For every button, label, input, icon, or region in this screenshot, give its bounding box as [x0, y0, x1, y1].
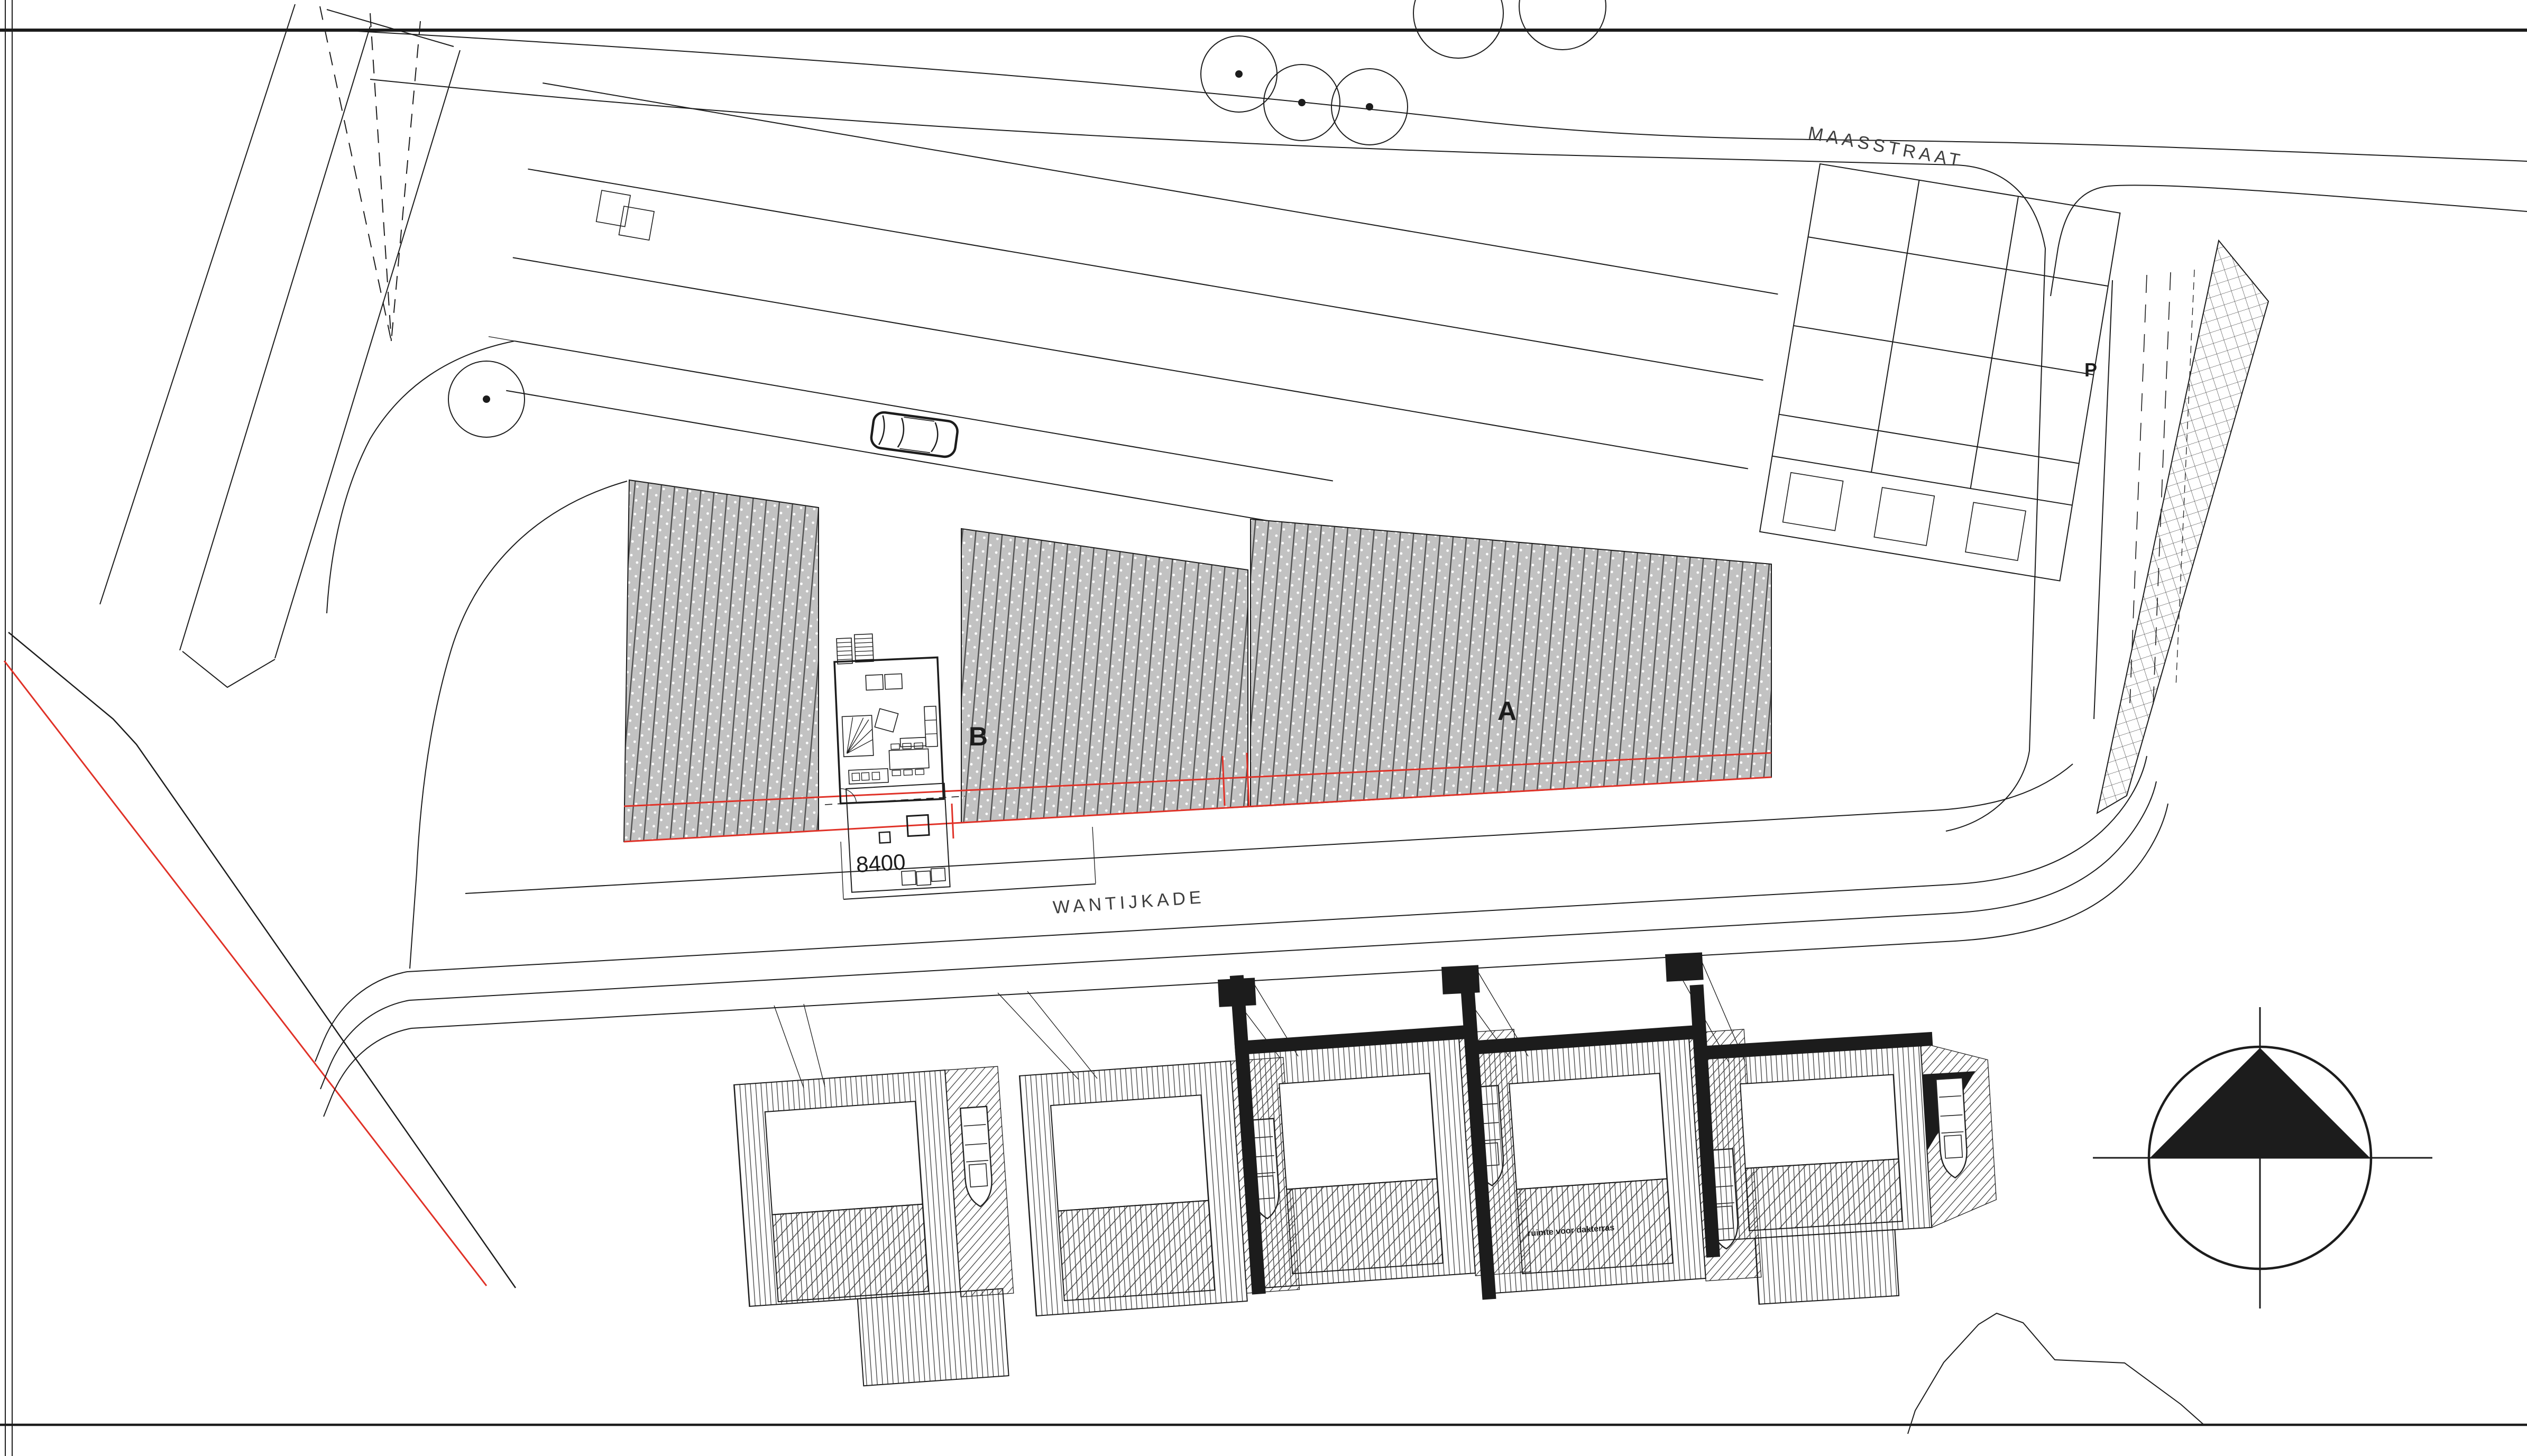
northeast-block [1760, 164, 2120, 581]
stairs [837, 634, 874, 664]
spiral-stair [842, 715, 874, 757]
car-icon [870, 411, 959, 458]
dimension-label: 8400 [856, 849, 906, 877]
parking-label: P [2084, 359, 2097, 381]
parcel-a: A [1251, 519, 1771, 807]
island-outline [1908, 1313, 2204, 1434]
platform-1 [734, 1066, 1019, 1393]
parcel-a-label: A [1497, 696, 1517, 726]
northwest-block [100, 4, 654, 687]
waterfront-edge [4, 632, 516, 1288]
pier-embankment [2097, 241, 2268, 813]
north-arrow-icon [2093, 1007, 2432, 1308]
street-label-maasstraat: MAASSTRAAT [1807, 123, 1965, 172]
site-plan-drawing: B A [0, 0, 2527, 1456]
parking-row [480, 337, 1333, 531]
parcel-b: B [624, 480, 1248, 842]
parcel-b-label: B [969, 722, 988, 751]
street-label-wantijkade: WANTIJKADE [1052, 887, 1206, 918]
jetty-platforms: ruimte voor dakterras [734, 956, 2002, 1393]
street-junction [327, 341, 627, 969]
